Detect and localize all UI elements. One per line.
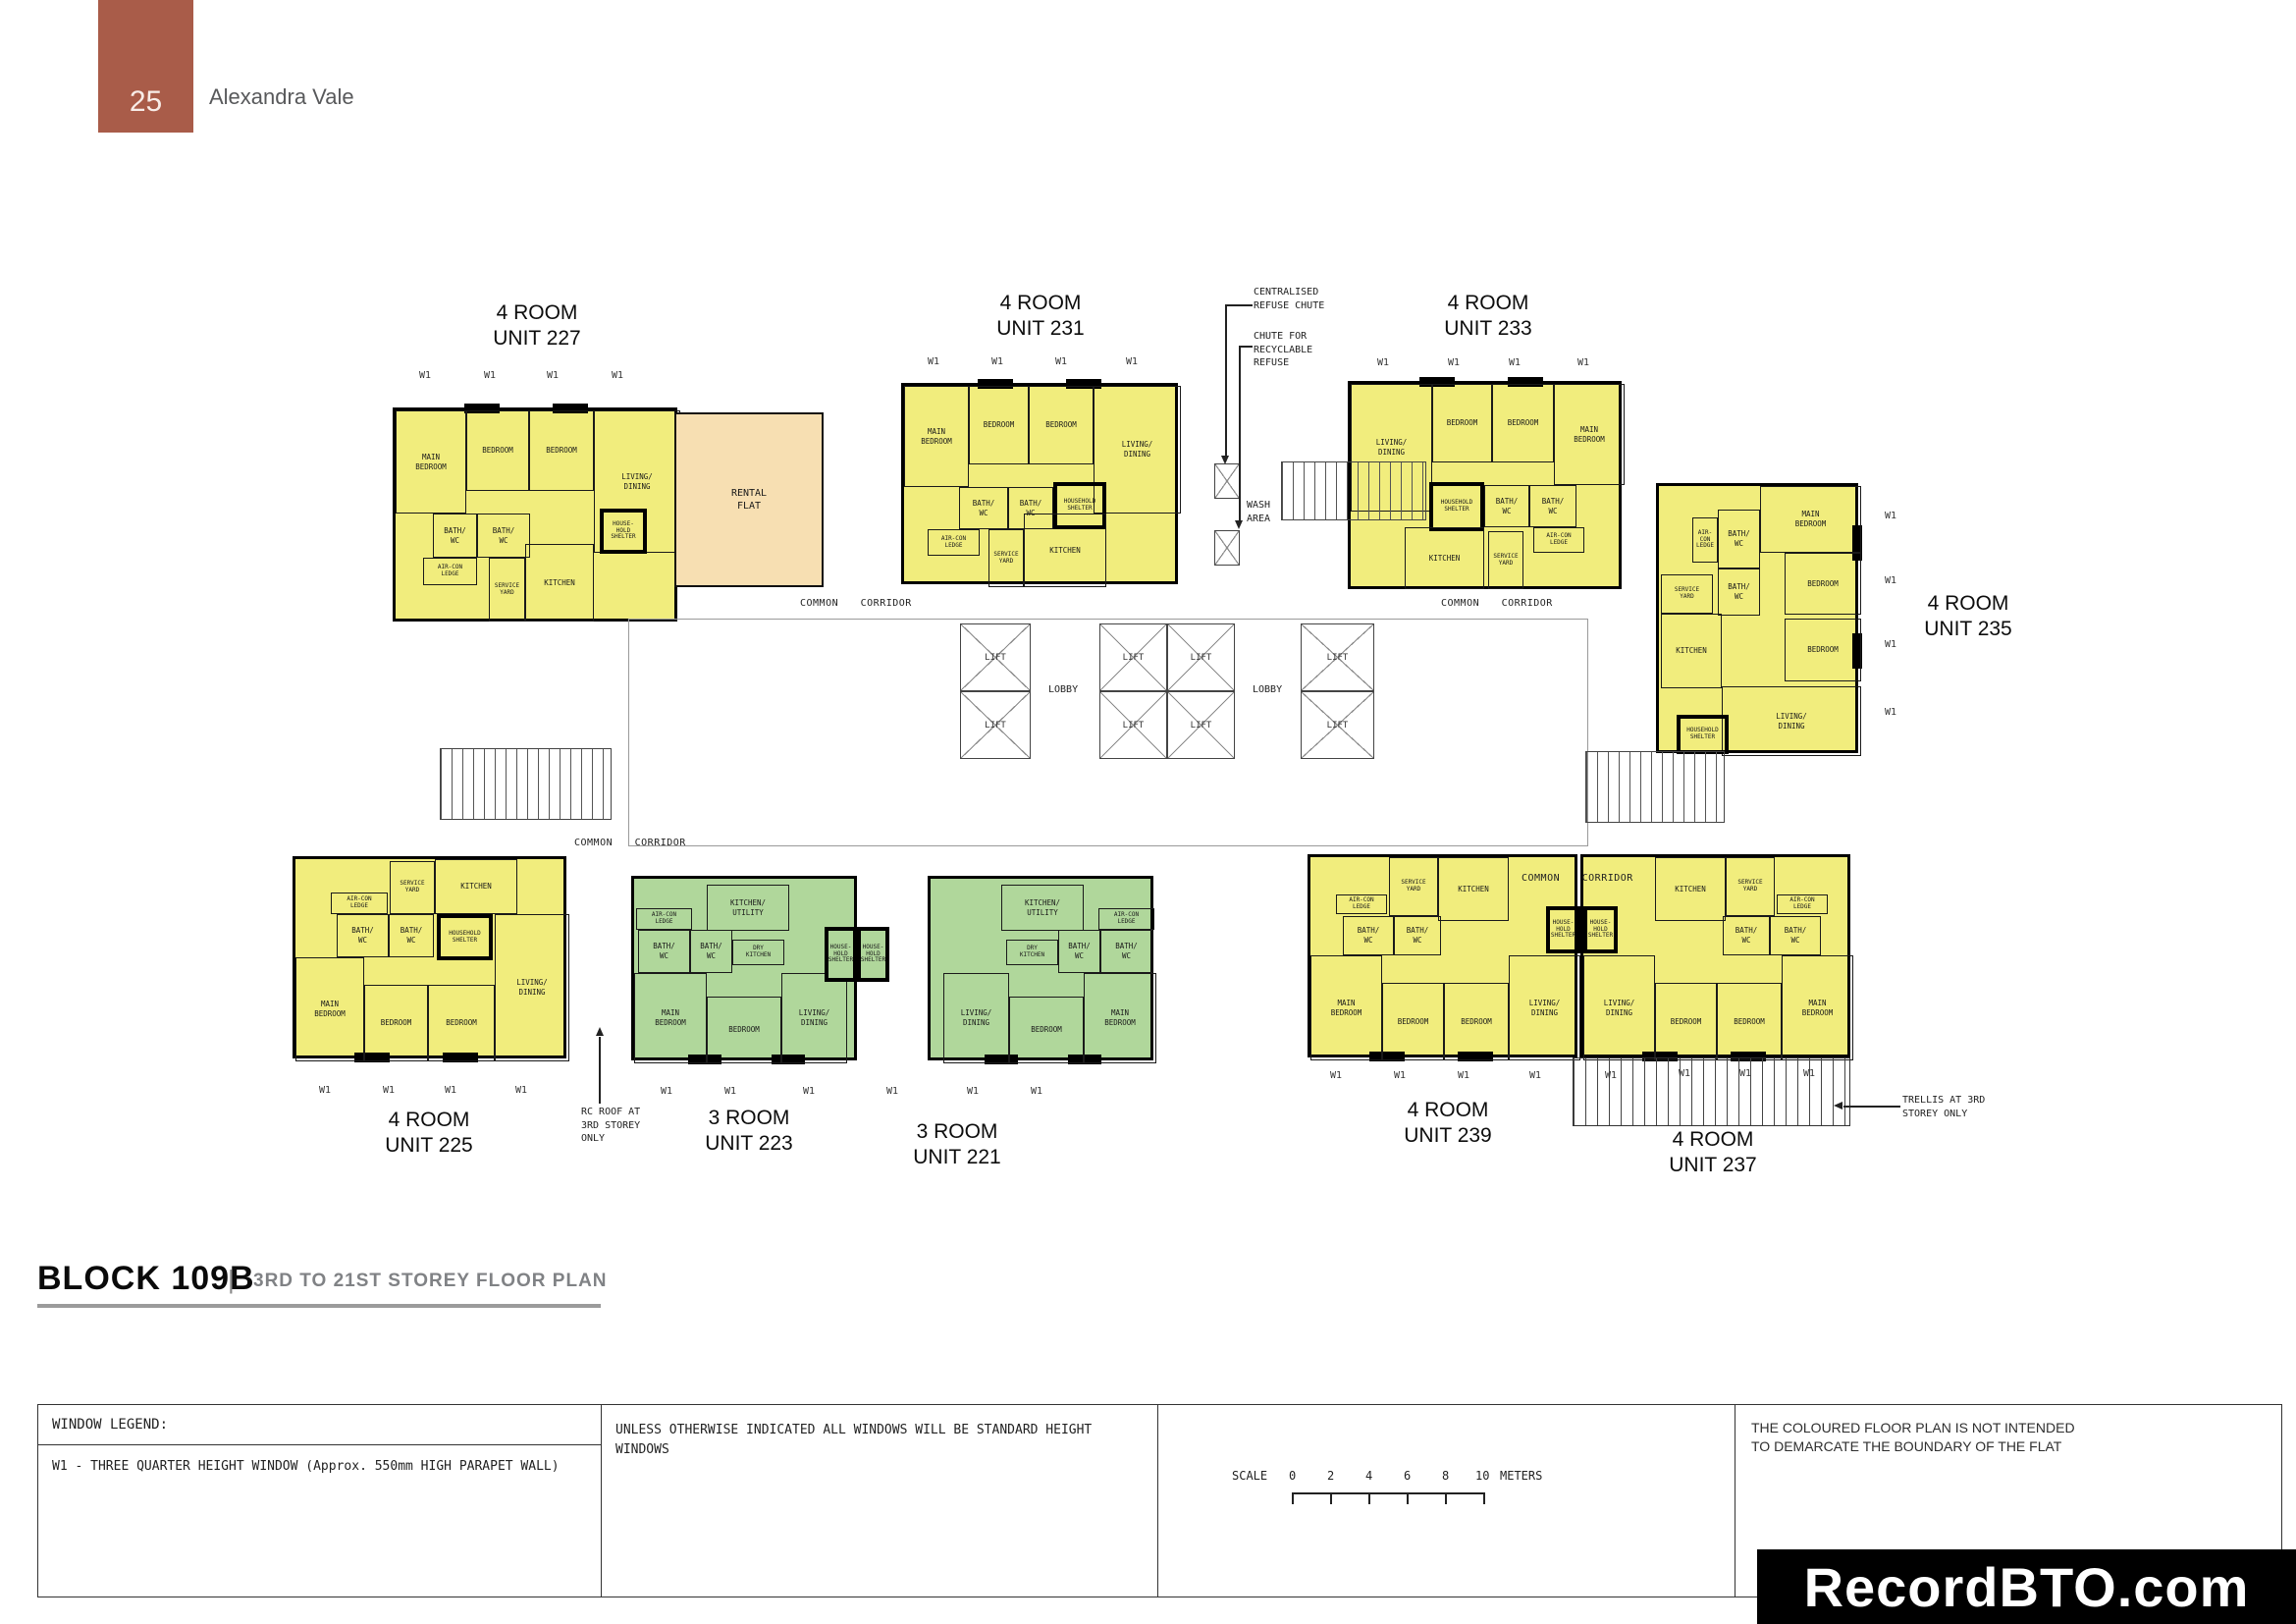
unit-225-plan: AIR-CON LEDGE SERVICE YARD KITCHEN BATH/… <box>293 856 566 1058</box>
unit-223-title: 3 ROOM UNIT 223 <box>685 1106 813 1158</box>
room-kitchen: KITCHEN <box>1405 527 1484 589</box>
room-kitchen-utility: KITCHEN/ UTILITY <box>1001 885 1084 931</box>
scale-tick: 8 <box>1442 1469 1449 1483</box>
unit-type: 4 ROOM <box>1424 291 1552 316</box>
scale-bar-tick <box>1407 1492 1409 1504</box>
windows-note-cell: UNLESS OTHERWISE INDICATED ALL WINDOWS W… <box>601 1404 1158 1597</box>
common-corridor-label: COMMON CORRIDOR <box>1522 872 1633 886</box>
room-living-dining: LIVING/ DINING <box>1094 386 1181 514</box>
room-bedroom: BEDROOM <box>1432 384 1492 462</box>
w1-marker: W1 <box>612 370 623 381</box>
room-bedroom: BEDROOM <box>969 386 1029 464</box>
unit-235-title: 4 ROOM UNIT 235 <box>1904 591 2032 643</box>
rc-roof-note: RC ROOF AT 3RD STOREY ONLY <box>581 1106 640 1146</box>
room-household-shelter: HOUSE- HOLD SHELTER <box>1546 906 1580 953</box>
w1-marker: W1 <box>724 1086 736 1097</box>
room-kitchen: KITCHEN <box>1024 514 1106 587</box>
scale-cell <box>1157 1404 1735 1597</box>
room-household-shelter: HOUSEHOLD SHELTER <box>1677 715 1729 754</box>
room-service-yard: SERVICE YARD <box>1726 857 1775 916</box>
window-legend-cell: WINDOW LEGEND: W1 - THREE QUARTER HEIGHT… <box>37 1404 602 1597</box>
page-number: 25 <box>130 85 162 119</box>
title-underline <box>37 1304 601 1308</box>
room-kitchen: KITCHEN <box>1661 614 1722 688</box>
lift-shaft: LIFT <box>1099 623 1167 691</box>
unit-223-plan: AIR-CON LEDGE KITCHEN/ UTILITY BATH/ WC … <box>631 876 857 1060</box>
room-household-shelter: HOUSE- HOLD SHELTER <box>600 509 647 554</box>
room-service-yard: SERVICE YARD <box>1488 531 1523 589</box>
room-bath-wc: BATH/ WC <box>1718 510 1760 568</box>
block-title: BLOCK 109B <box>37 1260 255 1298</box>
room-service-yard: SERVICE YARD <box>489 558 525 622</box>
room-bath-wc: BATH/ WC <box>959 487 1008 529</box>
common-corridor-label: COMMON CORRIDOR <box>800 597 912 611</box>
room-household-shelter: HOUSEHOLD SHELTER <box>1429 482 1484 531</box>
room-aircon-ledge: AIR-CON LEDGE <box>331 893 388 914</box>
room-main-bedroom: MAIN BEDROOM <box>1084 973 1156 1063</box>
room-bedroom: BEDROOM <box>1655 983 1717 1060</box>
room-bedroom: BEDROOM <box>1785 619 1861 681</box>
window-legend-title: WINDOW LEGEND: <box>38 1405 601 1445</box>
lift-shaft: LIFT <box>1167 691 1235 759</box>
w1-marker: W1 <box>383 1085 395 1096</box>
leader-line <box>1239 346 1241 522</box>
scale-tick: 2 <box>1327 1469 1334 1483</box>
leader-line <box>1225 304 1253 306</box>
w1-marker: W1 <box>1577 357 1589 368</box>
room-living-dining: LIVING/ DINING <box>781 973 847 1063</box>
lift-shaft: LIFT <box>1301 691 1374 759</box>
w1-marker: W1 <box>1679 1068 1690 1079</box>
room-bedroom: BEDROOM <box>1444 983 1509 1060</box>
scale-bar-tick <box>1483 1492 1485 1504</box>
w1-marker: W1 <box>319 1085 331 1096</box>
plan-subtitle: 3RD TO 21ST STOREY FLOOR PLAN <box>253 1271 608 1292</box>
w1-marker: W1 <box>1529 1070 1541 1081</box>
unit-type: 4 ROOM <box>977 291 1104 316</box>
wash-area-label: WASH AREA <box>1247 499 1270 525</box>
room-kitchen-utility: KITCHEN/ UTILITY <box>707 885 789 931</box>
unit-235-plan: AIR-CON LEDGE BATH/ WC MAIN BEDROOM SERV… <box>1656 483 1858 753</box>
room-bath-wc: BATH/ WC <box>1343 916 1394 955</box>
leader-line <box>599 1037 601 1104</box>
room-kitchen: KITCHEN <box>435 859 517 914</box>
unit-225-title: 4 ROOM UNIT 225 <box>365 1108 493 1160</box>
project-name: Alexandra Vale <box>209 84 354 110</box>
unit-number: UNIT 227 <box>473 326 601 352</box>
unit-227-plan: MAIN BEDROOM BEDROOM BEDROOM LIVING/ DIN… <box>393 407 677 622</box>
lobby-label: LOBBY <box>1048 683 1078 697</box>
staircase <box>440 748 612 820</box>
w1-marker: W1 <box>1448 357 1460 368</box>
room-bedroom: BEDROOM <box>364 985 428 1061</box>
room-living-dining: LIVING/ DINING <box>1509 955 1580 1060</box>
room-main-bedroom: MAIN BEDROOM <box>295 957 364 1061</box>
w1-marker: W1 <box>1739 1068 1751 1079</box>
leader-line <box>1843 1106 1900 1108</box>
w1-marker: W1 <box>928 356 939 367</box>
room-main-bedroom: MAIN BEDROOM <box>1554 384 1625 485</box>
room-bath-wc: BATH/ WC <box>337 914 389 957</box>
room-kitchen: KITCHEN <box>1655 857 1726 921</box>
w1-marker: W1 <box>1031 1086 1042 1097</box>
unit-number: UNIT 239 <box>1384 1123 1512 1149</box>
unit-type: 4 ROOM <box>365 1108 493 1133</box>
room-bath-wc: BATH/ WC <box>1484 485 1529 527</box>
scale-bar-tick <box>1445 1492 1447 1504</box>
common-corridor-label: COMMON CORRIDOR <box>1441 597 1553 611</box>
unit-233-title: 4 ROOM UNIT 233 <box>1424 291 1552 343</box>
w1-marker: W1 <box>1509 357 1521 368</box>
unit-type: 4 ROOM <box>1649 1127 1777 1153</box>
scale-bar <box>1292 1492 1484 1494</box>
refuse-chute-box <box>1214 463 1240 499</box>
room-main-bedroom: MAIN BEDROOM <box>1310 955 1382 1060</box>
w1-marker: W1 <box>1126 356 1138 367</box>
leader-line <box>1239 346 1253 348</box>
unit-231-title: 4 ROOM UNIT 231 <box>977 291 1104 343</box>
room-kitchen: KITCHEN <box>525 544 594 622</box>
room-main-bedroom: MAIN BEDROOM <box>1760 486 1861 553</box>
room-household-shelter: HOUSE- HOLD SHELTER <box>825 927 857 982</box>
rental-flat-area: RENTAL FLAT <box>674 412 824 587</box>
room-aircon-ledge: AIR-CON LEDGE <box>1098 908 1154 930</box>
scale-tick: 10 <box>1475 1469 1489 1483</box>
room-bedroom: BEDROOM <box>466 410 529 491</box>
room-kitchen: KITCHEN <box>1438 857 1509 921</box>
room-main-bedroom: MAIN BEDROOM <box>1782 955 1853 1060</box>
room-main-bedroom: MAIN BEDROOM <box>904 386 969 487</box>
recyclable-refuse-note: CHUTE FOR RECYCLABLE REFUSE <box>1254 330 1312 370</box>
w1-marker: W1 <box>419 370 431 381</box>
w1-marker: W1 <box>1803 1068 1815 1079</box>
room-household-shelter: HOUSE- HOLD SHELTER <box>857 927 889 982</box>
room-bath-wc: BATH/ WC <box>1529 485 1576 527</box>
room-dry-kitchen: DRY KITCHEN <box>732 940 784 965</box>
w1-marker: W1 <box>1885 511 1896 521</box>
w1-marker: W1 <box>1055 356 1067 367</box>
w1-marker: W1 <box>1885 575 1896 586</box>
unit-239-title: 4 ROOM UNIT 239 <box>1384 1098 1512 1150</box>
room-bedroom: BEDROOM <box>1785 553 1861 615</box>
centralised-refuse-note: CENTRALISED REFUSE CHUTE <box>1254 286 1324 312</box>
room-service-yard: SERVICE YARD <box>390 861 435 914</box>
room-living-dining: LIVING/ DINING <box>1583 955 1655 1060</box>
room-living-dining: LIVING/ DINING <box>943 973 1009 1063</box>
room-bath-wc: BATH/ WC <box>1394 916 1441 955</box>
room-bedroom: BEDROOM <box>1717 983 1782 1060</box>
lift-shaft: LIFT <box>1167 623 1235 691</box>
leader-line <box>1225 304 1227 458</box>
w1-marker: W1 <box>661 1086 672 1097</box>
room-bath-wc: BATH/ WC <box>477 514 530 558</box>
room-bedroom: BEDROOM <box>1009 997 1084 1063</box>
w1-marker: W1 <box>1605 1070 1617 1081</box>
unit-number: UNIT 221 <box>893 1145 1021 1170</box>
w1-marker: W1 <box>515 1085 527 1096</box>
staircase <box>1585 751 1725 823</box>
lobby-label: LOBBY <box>1253 683 1282 697</box>
unit-number: UNIT 223 <box>685 1131 813 1157</box>
room-service-yard: SERVICE YARD <box>988 529 1024 587</box>
room-bedroom: BEDROOM <box>428 985 495 1061</box>
unit-number: UNIT 235 <box>1904 617 2032 642</box>
floor-plan-page: 25 Alexandra Vale MAIN BEDROOM BEDROOM B… <box>0 0 2296 1624</box>
room-bedroom: BEDROOM <box>707 997 781 1063</box>
w1-marker: W1 <box>445 1085 456 1096</box>
page-number-box: 25 <box>98 0 193 133</box>
w1-marker: W1 <box>1394 1070 1406 1081</box>
disclaimer: THE COLOURED FLOOR PLAN IS NOT INTENDED … <box>1735 1405 2281 1470</box>
unit-221-plan: KITCHEN/ UTILITY AIR-CON LEDGE DRY KITCH… <box>928 876 1153 1060</box>
scale-bar-tick <box>1292 1492 1294 1504</box>
room-aircon-ledge: AIR-CON LEDGE <box>423 558 477 585</box>
w1-marker: W1 <box>967 1086 979 1097</box>
room-main-bedroom: MAIN BEDROOM <box>396 410 466 514</box>
room-aircon-ledge: AIR-CON LEDGE <box>636 908 692 930</box>
room-dry-kitchen: DRY KITCHEN <box>1006 940 1058 965</box>
unit-number: UNIT 233 <box>1424 316 1552 342</box>
title-divider: | <box>228 1265 235 1295</box>
room-bedroom: BEDROOM <box>1029 386 1094 464</box>
leader-arrow <box>1834 1102 1842 1110</box>
w1-marker: W1 <box>1377 357 1389 368</box>
unit-type: 3 ROOM <box>893 1119 1021 1145</box>
scale-tick: 0 <box>1289 1469 1296 1483</box>
lift-shaft: LIFT <box>960 691 1031 759</box>
refuse-chute-box <box>1214 530 1240 566</box>
watermark-box: RecordBTO.com <box>1757 1549 2296 1624</box>
leader-arrow <box>1221 456 1229 464</box>
lift-shaft: LIFT <box>1099 691 1167 759</box>
room-bath-wc: BATH/ WC <box>433 514 477 558</box>
lift-shaft: LIFT <box>960 623 1031 691</box>
room-bedroom: BEDROOM <box>529 410 594 491</box>
w1-marker: W1 <box>1330 1070 1342 1081</box>
room-living-dining: LIVING/ DINING <box>495 914 569 1061</box>
room-aircon-ledge: AIR-CON LEDGE <box>1777 894 1828 914</box>
room-bath-wc: BATH/ WC <box>638 930 690 973</box>
unit-number: UNIT 225 <box>365 1133 493 1159</box>
room-bath-wc: BATH/ WC <box>1723 916 1770 955</box>
scale-tick: 6 <box>1404 1469 1411 1483</box>
unit-227-title: 4 ROOM UNIT 227 <box>473 300 601 352</box>
w1-marker: W1 <box>1885 707 1896 718</box>
room-aircon-ledge: AIR-CON LEDGE <box>1336 894 1387 914</box>
unit-type: 4 ROOM <box>473 300 601 326</box>
w1-marker: W1 <box>803 1086 815 1097</box>
w1-marker: W1 <box>991 356 1003 367</box>
room-bath-wc: BATH/ WC <box>389 914 434 957</box>
watermark-text: RecordBTO.com <box>1804 1555 2250 1619</box>
room-bath-wc: BATH/ WC <box>1770 916 1821 955</box>
room-household-shelter: HOUSEHOLD SHELTER <box>437 914 493 960</box>
unit-237-title: 4 ROOM UNIT 237 <box>1649 1127 1777 1179</box>
scale-bar-tick <box>1330 1492 1332 1504</box>
w1-marker: W1 <box>886 1086 898 1097</box>
room-service-yard: SERVICE YARD <box>1389 857 1438 916</box>
w1-marker: W1 <box>1885 639 1896 650</box>
unit-number: UNIT 231 <box>977 316 1104 342</box>
trellis-note: TRELLIS AT 3RD STOREY ONLY <box>1902 1094 1985 1120</box>
w1-description: W1 - THREE QUARTER HEIGHT WINDOW (Approx… <box>38 1445 601 1488</box>
room-bedroom: BEDROOM <box>1492 384 1554 462</box>
unit-number: UNIT 237 <box>1649 1153 1777 1178</box>
unit-221-title: 3 ROOM UNIT 221 <box>893 1119 1021 1171</box>
scale-unit: METERS <box>1500 1469 1542 1483</box>
room-bath-wc: BATH/ WC <box>1058 930 1100 973</box>
leader-arrow <box>1235 520 1243 529</box>
room-bath-wc: BATH/ WC <box>1718 568 1760 616</box>
common-corridor-label: COMMON CORRIDOR <box>574 837 686 850</box>
room-aircon-ledge: AIR-CON LEDGE <box>928 529 980 556</box>
leader-arrow <box>596 1027 604 1036</box>
scale-bar-tick <box>1368 1492 1370 1504</box>
w1-marker: W1 <box>1458 1070 1469 1081</box>
lift-shaft: LIFT <box>1301 623 1374 691</box>
windows-note: UNLESS OTHERWISE INDICATED ALL WINDOWS W… <box>602 1405 1157 1475</box>
room-living-dining: LIVING/ DINING <box>1722 686 1861 756</box>
unit-type: 4 ROOM <box>1384 1098 1512 1123</box>
unit-type: 3 ROOM <box>685 1106 813 1131</box>
room-bath-wc: BATH/ WC <box>690 930 732 973</box>
scale-tick: 4 <box>1365 1469 1372 1483</box>
room-service-yard: SERVICE YARD <box>1661 574 1713 614</box>
w1-marker: W1 <box>547 370 559 381</box>
room-bath-wc: BATH/ WC <box>1100 930 1152 973</box>
unit-231-plan: MAIN BEDROOM BEDROOM BEDROOM LIVING/ DIN… <box>901 383 1178 584</box>
w1-marker: W1 <box>484 370 496 381</box>
room-aircon-ledge: AIR-CON LEDGE <box>1533 527 1584 553</box>
unit-type: 4 ROOM <box>1904 591 2032 617</box>
staircase <box>1281 461 1426 520</box>
room-household-shelter: HOUSE- HOLD SHELTER <box>1583 906 1618 953</box>
room-main-bedroom: MAIN BEDROOM <box>634 973 707 1063</box>
scale-label: SCALE <box>1232 1469 1267 1483</box>
room-bedroom: BEDROOM <box>1382 983 1444 1060</box>
room-aircon-ledge: AIR-CON LEDGE <box>1692 517 1718 563</box>
